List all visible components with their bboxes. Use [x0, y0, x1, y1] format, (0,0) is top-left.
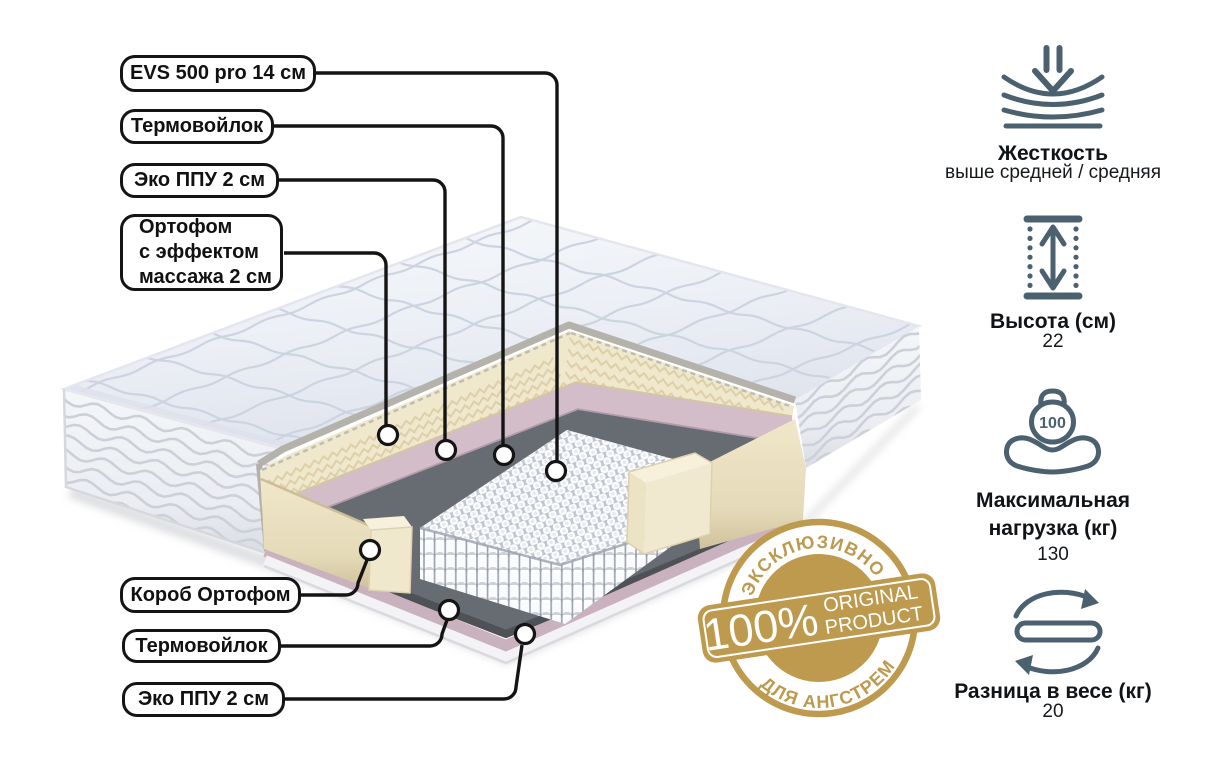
svg-text:100: 100 — [1039, 415, 1066, 432]
